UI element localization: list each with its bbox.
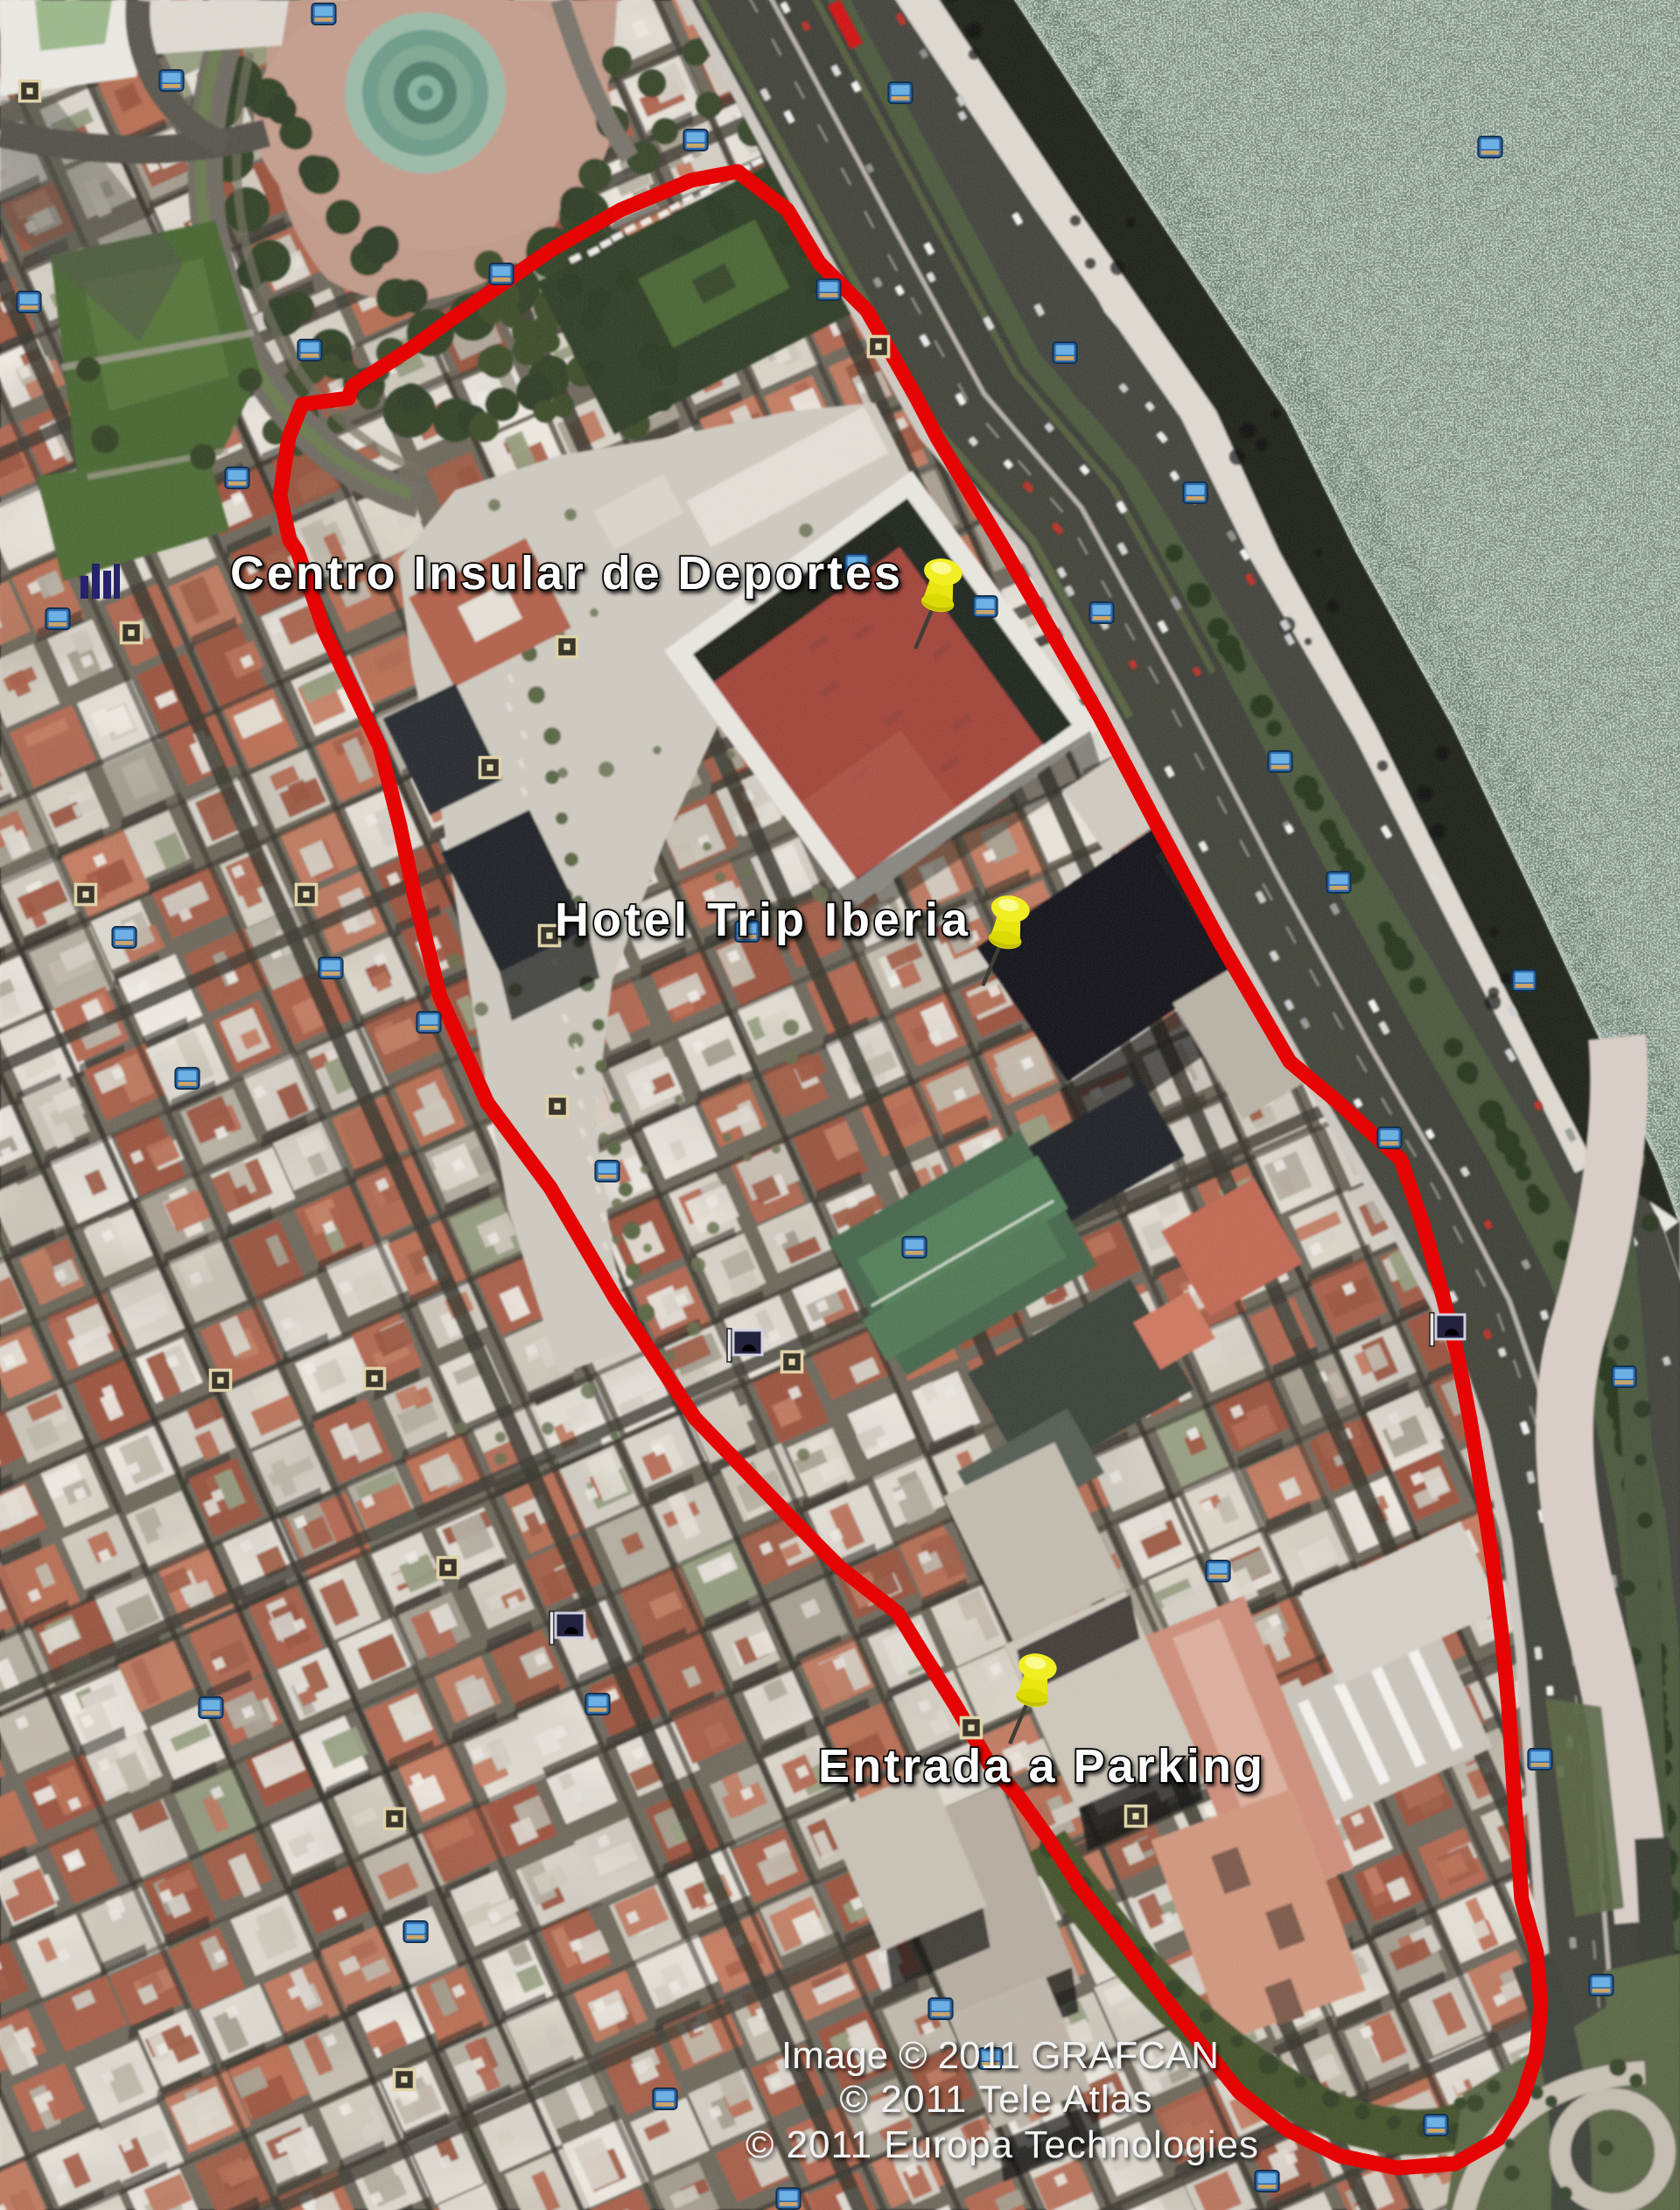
svg-text:© 2011 Europa Technologies: © 2011 Europa Technologies (745, 2123, 1258, 2166)
svg-text:Entrada a Parking: Entrada a Parking (818, 1740, 1263, 1793)
svg-text:© 2011 Tele Atlas: © 2011 Tele Atlas (840, 2078, 1152, 2121)
svg-text:Centro Insular de Deportes: Centro Insular de Deportes (230, 547, 900, 600)
svg-text:Image © 2011 GRAFCAN: Image © 2011 GRAFCAN (781, 2034, 1219, 2077)
svg-text:Hotel Trip Iberia: Hotel Trip Iberia (555, 894, 969, 946)
